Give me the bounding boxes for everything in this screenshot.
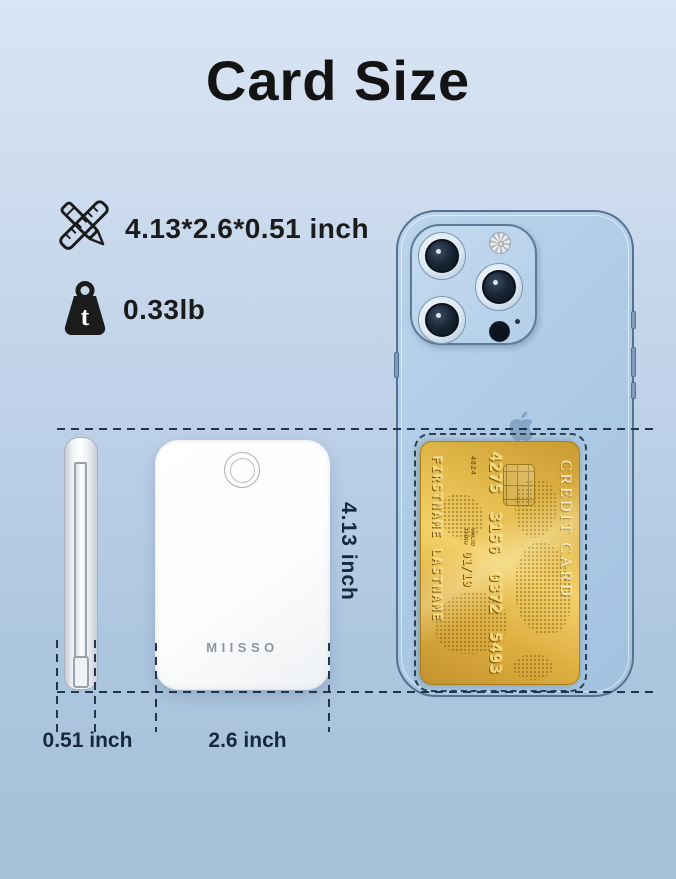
- camera-module: [410, 224, 537, 345]
- powerbank-side-plug: [73, 656, 89, 688]
- powerbank-front-view: MIISSO: [155, 440, 330, 690]
- card-label: CREDIT CARD: [556, 460, 574, 599]
- camera-lens-icon: [418, 296, 466, 344]
- tick-thickness-left: [56, 640, 58, 732]
- height-dimension-label: 4.13 inch: [336, 502, 360, 601]
- width-dimension-label: 2.6 inch: [180, 729, 315, 753]
- card-thru-label: THRU: [461, 528, 468, 547]
- camera-lens-icon: [418, 232, 466, 280]
- powerbank-side-slot: [74, 462, 87, 659]
- mute-switch: [631, 311, 636, 329]
- spec-dimensions-text: 4.13*2.6*0.51 inch: [125, 213, 369, 245]
- powerbank-side-view: [64, 437, 98, 690]
- volume-down-button: [631, 382, 636, 399]
- flash-icon: [489, 232, 511, 254]
- spec-weight-text: 0.33lb: [123, 294, 205, 326]
- product-size-infographic: Card Size 4.13*2.6*: [0, 0, 676, 879]
- power-button: [394, 352, 399, 378]
- mic-dot-icon: [515, 319, 520, 324]
- card-expiry: 01/19: [461, 551, 475, 587]
- weight-icon: t: [60, 280, 110, 341]
- dimension-line-bottom: [57, 691, 655, 693]
- page-title: Card Size: [0, 48, 676, 113]
- credit-card: CREDIT CARD 4824 4275 3156 0372 5493 VAL…: [420, 441, 580, 685]
- card-bin: 4824: [469, 456, 476, 476]
- weight-icon-letter: t: [81, 302, 90, 331]
- card-holder-name: FIRSTNAME LASTNAME: [430, 456, 444, 622]
- dimension-line-top: [57, 428, 655, 430]
- spec-row-weight: t 0.33lb: [60, 282, 205, 338]
- card-valid-block: VALID THRU 01/19: [461, 528, 475, 587]
- tick-width-right: [328, 643, 330, 732]
- powerbank-brand: MIISSO: [155, 640, 330, 655]
- ruler-pencil-icon: [56, 199, 112, 260]
- tick-width-left: [155, 643, 157, 732]
- card-valid-label: VALID: [468, 528, 475, 547]
- volume-up-button: [631, 347, 636, 377]
- card-chip-icon: [503, 464, 535, 506]
- powerbank-power-button: [224, 452, 260, 488]
- tick-thickness-right: [94, 640, 96, 732]
- camera-lens-icon: [475, 263, 523, 311]
- lidar-sensor-icon: [489, 321, 510, 342]
- thickness-dimension-label: 0.51 inch: [30, 729, 145, 753]
- spec-row-dimensions: 4.13*2.6*0.51 inch: [56, 200, 369, 258]
- card-number: 4275 3156 0372 5493: [486, 452, 505, 678]
